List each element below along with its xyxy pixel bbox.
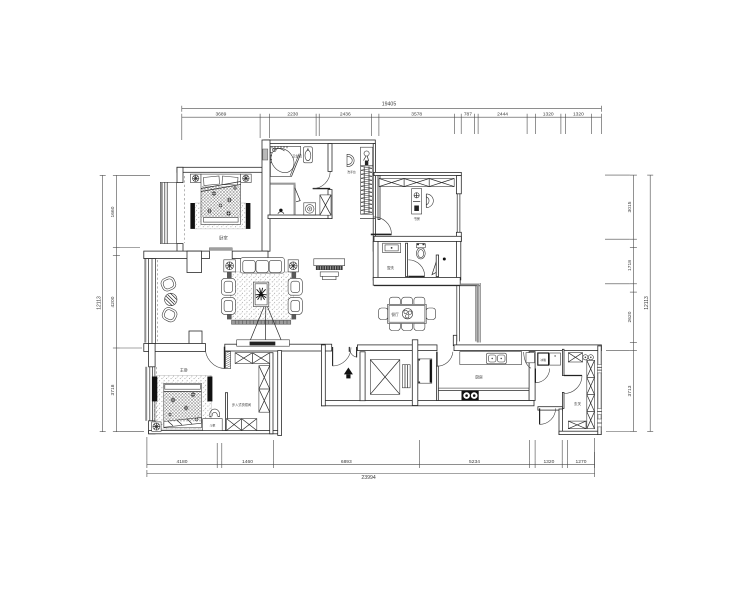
svg-text:2230: 2230 [287,112,298,118]
svg-text:2444: 2444 [497,112,508,118]
svg-text:12113: 12113 [97,296,103,310]
svg-text:3718: 3718 [110,384,116,395]
svg-text:盥洗: 盥洗 [387,265,394,270]
svg-text:玄关: 玄关 [574,401,582,406]
svg-text:19405: 19405 [382,102,397,108]
svg-text:卫生间: 卫生间 [292,154,302,159]
svg-text:2620: 2620 [627,311,633,322]
svg-text:洗手台: 洗手台 [347,169,356,174]
svg-text:6893: 6893 [341,459,352,465]
svg-text:2436: 2436 [340,112,351,118]
svg-text:3578: 3578 [411,112,422,118]
svg-text:斗柜: 斗柜 [209,423,215,428]
svg-text:1460: 1460 [242,459,253,465]
svg-text:卧室: 卧室 [219,235,228,242]
svg-text:1320: 1320 [543,112,554,118]
svg-text:冰箱: 冰箱 [540,358,546,362]
svg-text:餐厅: 餐厅 [391,312,399,317]
svg-text:4200: 4200 [110,296,116,307]
svg-text:1270: 1270 [576,459,587,465]
svg-text:3713: 3713 [627,385,633,396]
svg-text:5234: 5234 [469,459,480,465]
svg-text:787: 787 [464,112,472,118]
svg-text:1718: 1718 [627,260,633,271]
svg-text:厨房: 厨房 [475,375,483,380]
svg-text:书房: 书房 [414,216,420,221]
svg-text:23994: 23994 [361,475,376,481]
svg-text:4180: 4180 [177,459,188,465]
svg-text:1320: 1320 [543,459,554,465]
svg-text:步入式衣帽间: 步入式衣帽间 [232,402,251,407]
svg-text:1660: 1660 [110,206,116,217]
svg-text:1320: 1320 [573,112,584,118]
svg-text:3015: 3015 [627,201,633,212]
svg-text:12113: 12113 [644,296,650,310]
svg-text:主卧: 主卧 [180,367,188,374]
svg-text:3689: 3689 [215,112,226,118]
